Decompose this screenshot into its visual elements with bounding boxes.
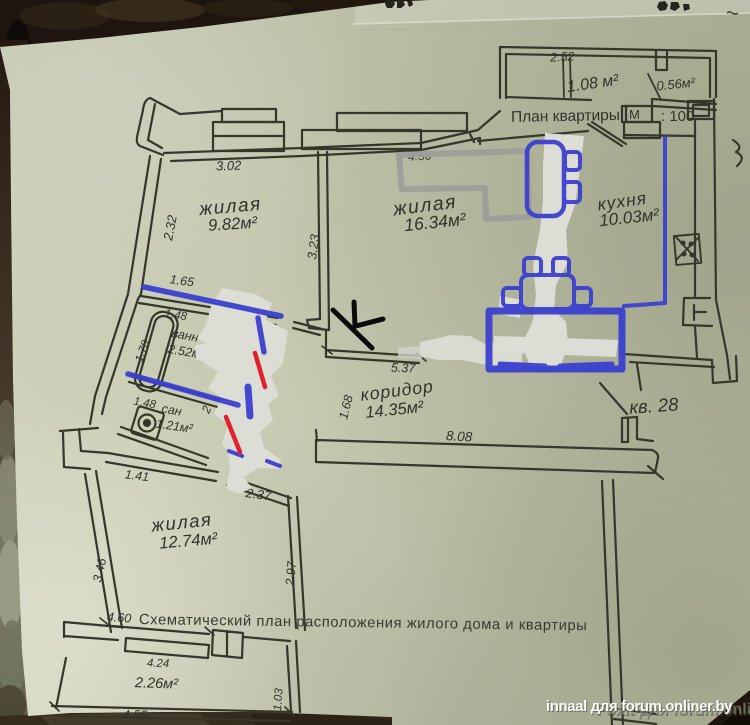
svg-text:1.41: 1.41 [124, 467, 150, 484]
svg-text:8.08: 8.08 [446, 428, 474, 444]
svg-text:4.55: 4.55 [123, 707, 148, 722]
svg-text:М: М [629, 107, 640, 122]
svg-text:4.60: 4.60 [106, 610, 131, 626]
svg-text:2.26м²: 2.26м² [134, 675, 180, 693]
svg-text:План квартиры: План квартиры [511, 107, 620, 126]
svg-text:4.24: 4.24 [147, 657, 170, 670]
svg-text:3.02: 3.02 [216, 158, 243, 174]
svg-text:5.37: 5.37 [391, 361, 417, 376]
svg-text:2.97: 2.97 [283, 560, 299, 587]
svg-text:innaal для forum.onliner.by: innaal для forum.onliner.by [546, 699, 733, 715]
svg-text:9.82м²: 9.82м² [208, 214, 259, 235]
svg-text:: 100: : 100 [661, 108, 694, 125]
svg-text:кв. 28: кв. 28 [629, 393, 680, 417]
svg-text:1.03: 1.03 [272, 687, 286, 711]
svg-text:2.52: 2.52 [549, 49, 575, 64]
